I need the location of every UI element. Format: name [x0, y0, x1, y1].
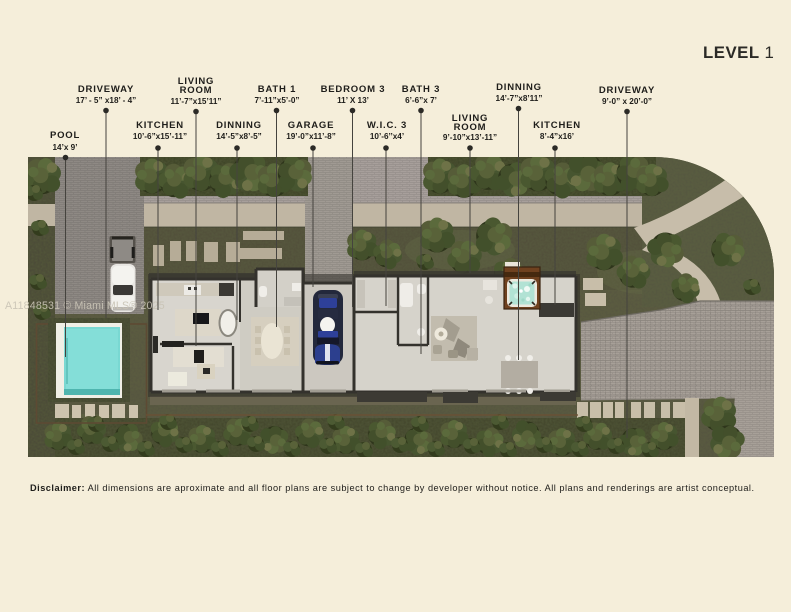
svg-text:DINNING: DINNING: [216, 120, 262, 131]
svg-text:LEVEL 1: LEVEL 1: [703, 43, 774, 62]
svg-text:9’-10”x13’-11”: 9’-10”x13’-11”: [443, 133, 497, 142]
svg-text:Disclaimer: All dimensions are: Disclaimer: All dimensions are aproximat…: [30, 483, 755, 493]
svg-text:10’-6”x15’-11”: 10’-6”x15’-11”: [133, 132, 187, 141]
svg-text:6’-6”x 7’: 6’-6”x 7’: [405, 96, 437, 105]
svg-text:DRIVEWAY: DRIVEWAY: [599, 85, 655, 96]
svg-text:19’-0”x11’-8”: 19’-0”x11’-8”: [286, 132, 336, 141]
svg-text:11’ X 13’: 11’ X 13’: [337, 96, 369, 105]
svg-text:KITCHEN: KITCHEN: [533, 120, 581, 131]
svg-text:9’-0” x 20’-0”: 9’-0” x 20’-0”: [602, 97, 652, 106]
svg-text:ROOM: ROOM: [180, 85, 213, 96]
svg-text:8’-4”x16’: 8’-4”x16’: [540, 132, 574, 141]
svg-text:7’-11”x5’-0”: 7’-11”x5’-0”: [254, 96, 299, 105]
svg-text:W.I.C. 3: W.I.C. 3: [367, 120, 407, 131]
svg-text:BEDROOM 3: BEDROOM 3: [321, 84, 386, 95]
svg-text:10’-6’’x4’: 10’-6’’x4’: [370, 132, 404, 141]
svg-text:A11848531 © Miami MLS® 2025: A11848531 © Miami MLS® 2025: [5, 300, 165, 312]
svg-text:KITCHEN: KITCHEN: [136, 120, 184, 131]
svg-text:BATH 1: BATH 1: [258, 84, 296, 95]
svg-text:14’x 9’: 14’x 9’: [52, 143, 77, 152]
svg-text:14’-7”x8’11”: 14’-7”x8’11”: [496, 94, 543, 103]
svg-text:POOL: POOL: [50, 130, 80, 141]
svg-text:11’-7”x15’11”: 11’-7”x15’11”: [171, 97, 222, 106]
svg-text:ROOM: ROOM: [454, 122, 487, 133]
svg-text:GARAGE: GARAGE: [288, 120, 335, 131]
svg-text:DRIVEWAY: DRIVEWAY: [78, 84, 134, 95]
svg-text:BATH 3: BATH 3: [402, 84, 440, 95]
svg-text:14’-5”x8’-5”: 14’-5”x8’-5”: [216, 132, 262, 141]
svg-text:DINNING: DINNING: [496, 82, 542, 93]
svg-text:17’ - 5” x18’ - 4”: 17’ - 5” x18’ - 4”: [76, 96, 137, 105]
